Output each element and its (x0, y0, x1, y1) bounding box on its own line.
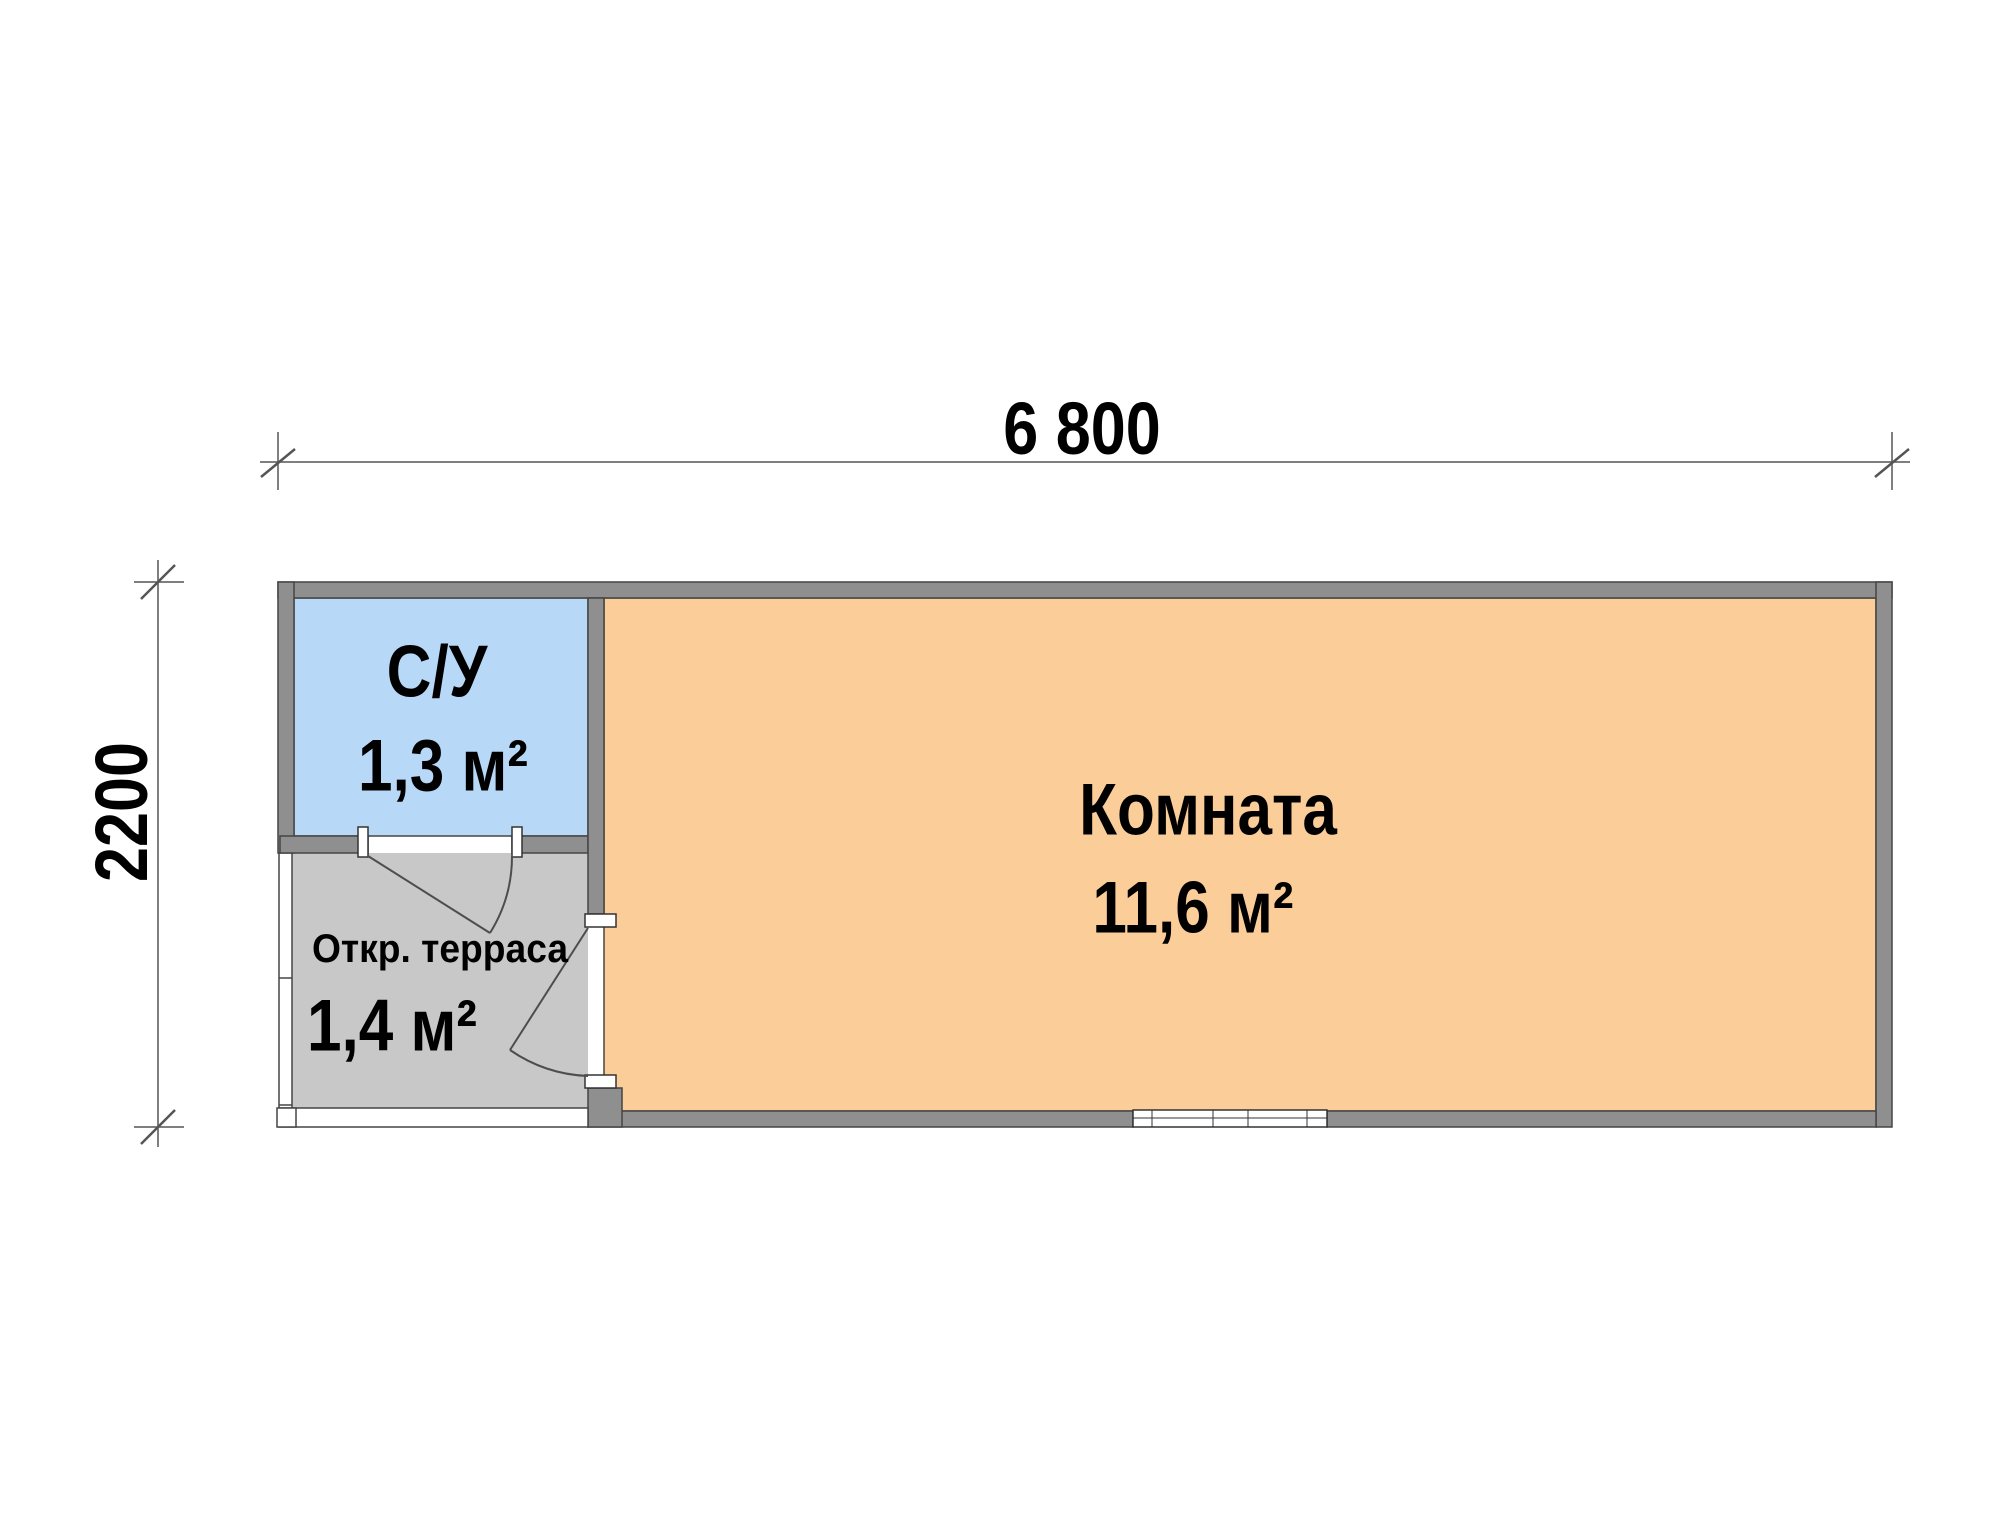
wall-left (278, 582, 294, 853)
floor-plan-drawing (0, 0, 2000, 1539)
bathroom-name-label: С/У (387, 636, 488, 709)
terrace-area-label: 1,4 м² (307, 990, 477, 1063)
bathroom-door-jamb-left (358, 827, 368, 857)
wall-room-partition-upper (588, 598, 604, 914)
window (1133, 1110, 1327, 1127)
wall-bathroom-partition-left (280, 836, 368, 853)
room-area-label: 11,6 м² (1092, 872, 1293, 945)
wall-bottom-right-of-window (1327, 1111, 1876, 1127)
room-name-label: Комната (1079, 774, 1337, 847)
terrace-open-edge (279, 853, 292, 1110)
wall-right (1876, 582, 1892, 1127)
wall-room-partition-lower (588, 1088, 622, 1127)
terrace-deck-edge-band (279, 1108, 588, 1127)
dimension-width-label: 6 800 (1003, 392, 1160, 466)
bathroom-door-jamb-right (512, 827, 522, 857)
wall-bottom-left-of-window (588, 1111, 1133, 1127)
terrace-floor (292, 853, 588, 1108)
room-fills (292, 598, 1876, 1111)
floor-plan-page: 6 800 2200 С/У 1,3 м² Комната 11,6 м² От… (0, 0, 2000, 1539)
terrace-corner-post (277, 1108, 296, 1127)
wall-bathroom-partition-right (512, 836, 588, 853)
room-door-jamb-bottom (585, 1075, 616, 1088)
room-door-jamb-top (585, 914, 616, 927)
terrace-name-label: Откр. терраса (312, 929, 568, 969)
bathroom-area-label: 1,3 м² (358, 730, 528, 803)
dimension-height-label: 2200 (85, 742, 159, 882)
wall-top (278, 582, 1892, 598)
main-room-floor (604, 598, 1876, 1111)
